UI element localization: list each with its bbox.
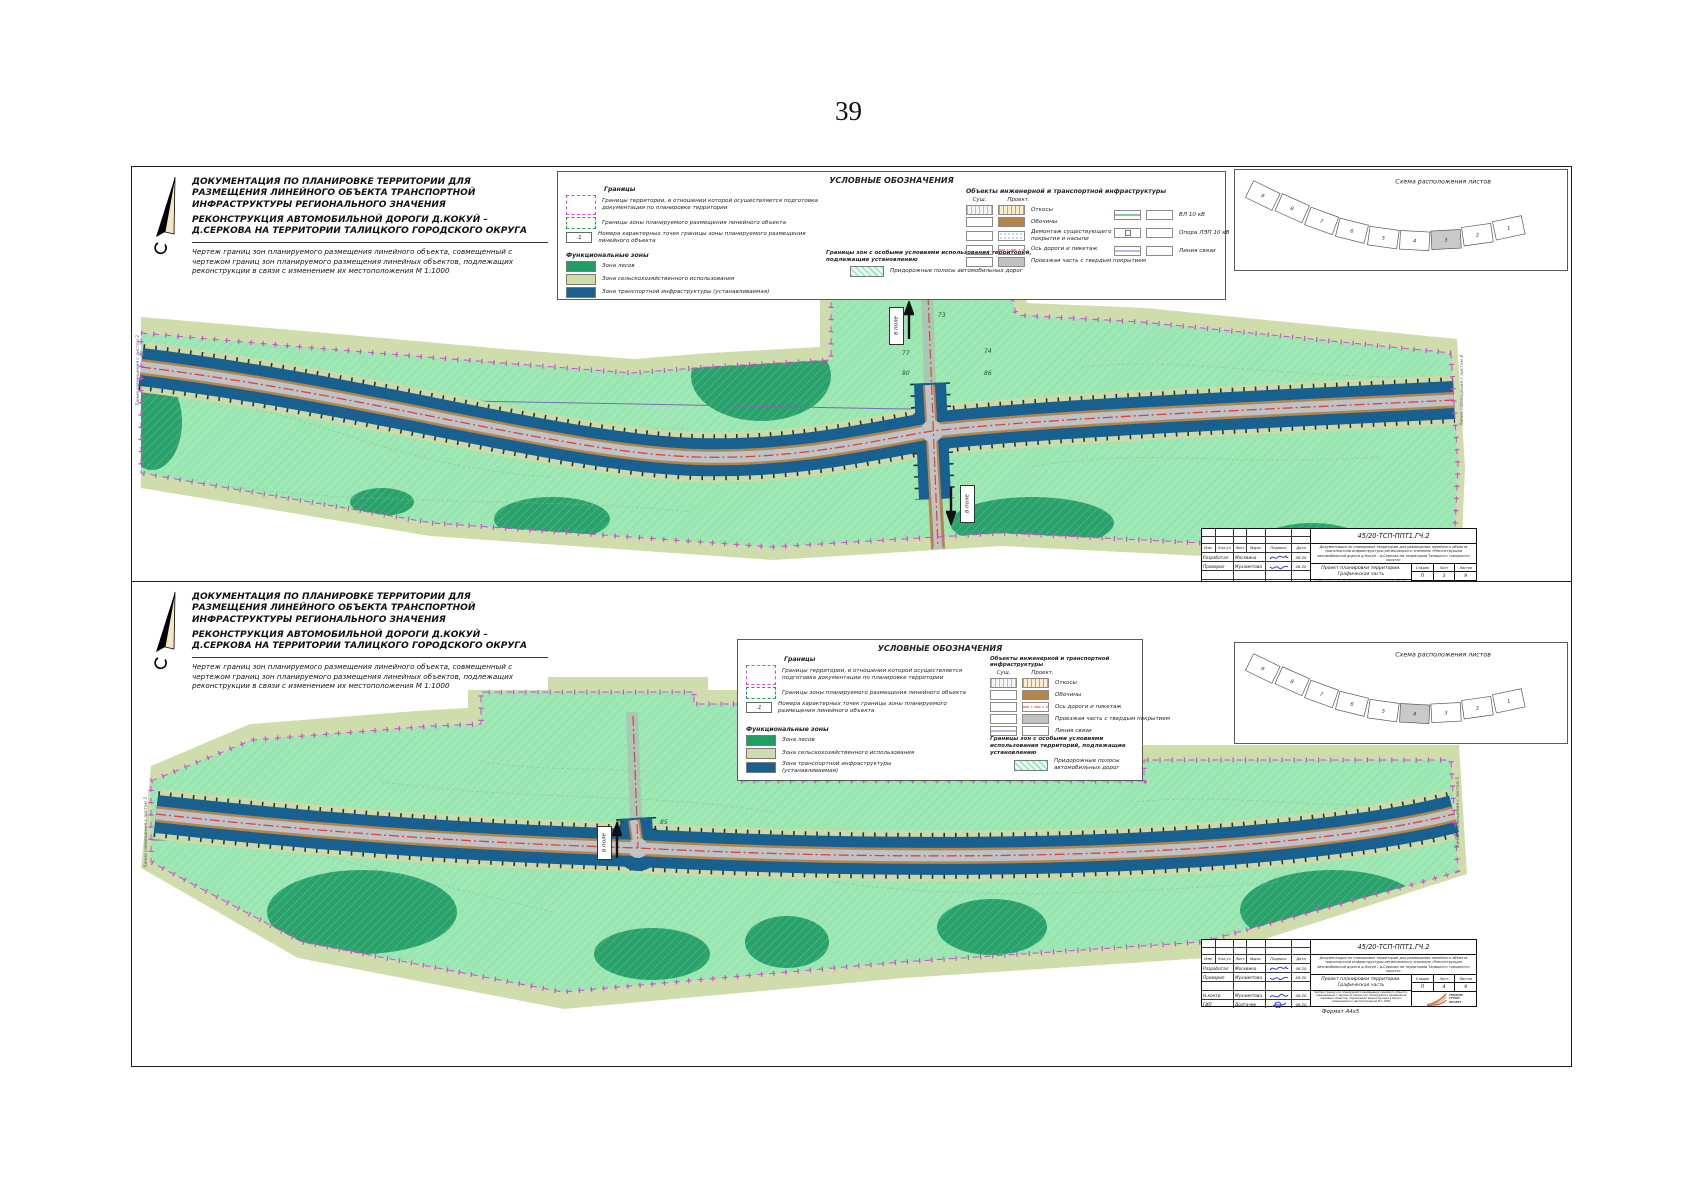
legend-item: Обочины <box>990 690 1138 700</box>
legend-item-label: Ось дороги и пикетаж <box>1055 704 1121 711</box>
sheet-cell: 8 <box>1275 667 1309 696</box>
sheet-cell: 4 <box>1400 230 1430 250</box>
object-zone-boundary-symbol <box>746 687 776 699</box>
sheet-number: 3 <box>1434 572 1456 580</box>
sheet-location-scheme: Схема расположения листов 9 8 7 6 5 4 3 … <box>1234 642 1568 744</box>
sheet-title-block: ДОКУМЕНТАЦИЯ ПО ПЛАНИРОВКЕ ТЕРРИТОРИИ ДЛ… <box>192 177 548 275</box>
col-podpis: Подпись <box>1266 955 1292 963</box>
point-number-symbol: .1 <box>566 232 592 243</box>
slopes-existing-swatch <box>966 205 993 215</box>
road-axis-symbol <box>998 245 1025 255</box>
sheet-cell-current: 3 <box>1431 230 1461 250</box>
matchline-label-right: Линия совмещения с листом 5 <box>1456 777 1461 848</box>
svg-text:4: 4 <box>1413 711 1417 717</box>
svg-text:3: 3 <box>1444 710 1448 716</box>
sheet-cell: 2 <box>1462 696 1494 719</box>
forest-zone-swatch <box>746 735 776 746</box>
scheme-title: Схема расположения листов <box>1395 652 1491 659</box>
legend-item: ВЛ 10 кВ <box>1114 210 1222 220</box>
demolition-existing-swatch <box>966 231 993 241</box>
legend-item: .1 Номера характерных точек границы зоны… <box>566 231 821 245</box>
signature <box>1269 992 1289 999</box>
row-name: Долгачев <box>1234 1000 1266 1008</box>
col-data: Дата <box>1292 544 1310 552</box>
slopes-existing-swatch <box>990 678 1017 688</box>
title-block: Изм.Кол.учЛист№док.ПодписьДата Разработа… <box>1201 939 1477 1007</box>
project-title: Проект планировки территории. Графическа… <box>1311 975 1411 991</box>
legend-item-label: Откосы <box>1031 207 1053 214</box>
row-role: Проверил <box>1202 562 1234 570</box>
legend-utilities-group: ВЛ 10 кВ Опора ЛЭП 10 кВ Линия связи <box>1114 208 1222 258</box>
agro-zone-swatch <box>746 748 776 759</box>
field-direction-label: в поле <box>889 307 904 345</box>
row-role: Разработал <box>1202 964 1234 972</box>
signature <box>1269 974 1289 981</box>
legend-section-zones: Функциональные зоны <box>566 252 821 259</box>
row-name: Мухаметова <box>1234 991 1266 999</box>
sheet-cell-current: 4 <box>1400 703 1430 723</box>
north-arrow-icon <box>144 175 190 255</box>
svg-text:3: 3 <box>1444 237 1448 243</box>
power-pole-symbol <box>1114 228 1141 238</box>
legend-item-label: Линия связи <box>1179 248 1216 255</box>
sheet-cell: 6 <box>1335 691 1368 716</box>
legend-item-label: Откосы <box>1055 680 1077 687</box>
legend-item-label: Номера характерных точек границы зоны пл… <box>598 231 821 245</box>
signature <box>1269 965 1289 972</box>
sheet-cell: 7 <box>1305 207 1339 235</box>
shoulders-existing-swatch <box>990 690 1017 700</box>
road-axis-symbol <box>1022 702 1049 712</box>
svg-text:4: 4 <box>1413 238 1417 244</box>
legend-section-special: Границы зон с особыми условиями использо… <box>990 736 1138 756</box>
legend-borders-group: Границы Границы территории, в отношении … <box>746 656 984 717</box>
row-name: Москвина <box>1234 964 1266 972</box>
legend-item: Границы зоны планируемого размещения лин… <box>566 217 821 229</box>
document-description: Документация по планировке территории дл… <box>1311 544 1476 564</box>
legend-item: Зона лесов <box>746 735 984 746</box>
transport-zone-swatch <box>566 287 596 298</box>
drawing-name: Чертеж границ зон планируемого размещени… <box>1311 991 1411 1006</box>
col-list: Лист <box>1234 955 1247 963</box>
legend-item: Придорожные полосы автомобильных дорог <box>1014 758 1138 772</box>
transport-zone-swatch <box>746 762 776 773</box>
signature <box>1269 554 1289 561</box>
power-line-symbol <box>1114 210 1141 220</box>
legend-item: Зона сельскохозяйственного использования <box>566 274 821 285</box>
col-ndok: №док. <box>1247 955 1266 963</box>
forest-zone-swatch <box>566 261 596 272</box>
document-description: Документация по планировке территории дл… <box>1311 955 1476 975</box>
signature <box>1269 563 1289 570</box>
legend-item-label: Линия связи <box>1055 728 1092 735</box>
legend-item-label: Проезжая часть с твердым покрытием <box>1031 258 1146 265</box>
row-role: Н.контр. <box>1202 991 1234 999</box>
agro-zone-swatch <box>566 274 596 285</box>
scheme-title: Схема расположения листов <box>1395 179 1491 186</box>
row-name: Москвина <box>1234 553 1266 561</box>
field-direction-label: в поле <box>960 485 975 523</box>
legend-item-label: Обочины <box>1031 219 1057 226</box>
legend-item: Опора ЛЭП 10 кВ <box>1114 228 1222 238</box>
col-data: Дата <box>1292 955 1310 963</box>
legend-item: Зона сельскохозяйственного использования <box>746 748 984 759</box>
legend-title: УСЛОВНЫЕ ОБОЗНАЧЕНИЯ <box>558 176 1225 185</box>
col-koluch: Кол.уч <box>1216 544 1234 552</box>
legend-item: Обочины <box>966 217 1116 227</box>
legend-special-group: Границы зон с особыми условиями использо… <box>990 736 1138 774</box>
sheets-total: 9 <box>1455 983 1476 991</box>
legend-item: Откосы <box>990 678 1138 688</box>
object-title: РЕКОНСТРУКЦИЯ АВТОМОБИЛЬНОЙ ДОРОГИ Д.КОК… <box>192 630 548 658</box>
legend-item: Зона лесов <box>566 261 821 272</box>
signature <box>1269 1001 1289 1008</box>
row-date: 08.20 <box>1292 1000 1310 1008</box>
svg-text:80: 80 <box>902 370 910 377</box>
sheet-title-block: ДОКУМЕНТАЦИЯ ПО ПЛАНИРОВКЕ ТЕРРИТОРИИ ДЛ… <box>192 592 548 690</box>
roadside-strip-swatch <box>1014 760 1048 771</box>
legend-item: .1 Номера характерных точек границы зоны… <box>746 701 984 715</box>
legend-item: Демонтаж существующего покрытия и насыпи <box>966 229 1116 243</box>
arrow-up-icon <box>612 822 622 860</box>
legend-item-label: Номера характерных точек границы зоны пл… <box>778 701 984 715</box>
spacer <box>1022 726 1049 736</box>
row-date: 08.20 <box>1292 964 1310 972</box>
legend-item-label: Зона сельскохозяйственного использования <box>602 276 734 283</box>
point-number-symbol: .1 <box>746 702 772 713</box>
sheet-location-scheme: Схема расположения листов 9 8 7 6 5 4 3 … <box>1234 169 1568 271</box>
spacer <box>966 257 993 267</box>
sheet-cell: 3 <box>1431 703 1461 723</box>
pavement-swatch <box>998 257 1025 267</box>
row-date: 08.20 <box>1292 973 1310 981</box>
col-list: Лист <box>1234 544 1247 552</box>
legend-zones-group: Функциональные зоны Зона лесов Зона сель… <box>566 252 821 300</box>
spacer <box>990 714 1017 724</box>
matchline-label-left: Линия совмещения с листом 3 <box>144 797 149 868</box>
legend-zones-group: Функциональные зоны Зона лесов Зона сель… <box>746 726 984 777</box>
territory-boundary-symbol <box>746 665 776 685</box>
sheet-cell: 2 <box>1462 223 1494 246</box>
legend-item-label: Границы территории, в отношении которой … <box>602 198 821 212</box>
title-block-main: 45/20-ТСП-ППТ1.ГЧ.2 Документация по план… <box>1311 940 1476 1006</box>
legend-column-headers: Сущ. Проект. <box>990 670 1138 676</box>
sheet-cell: 6 <box>1335 218 1368 243</box>
legend-infra-group: Объекты инженерной и транспортной инфрас… <box>966 188 1116 269</box>
legend-item-label: Опора ЛЭП 10 кВ <box>1179 230 1229 237</box>
col-izm: Изм. <box>1202 544 1216 552</box>
svg-text:73: 73 <box>938 312 946 319</box>
legend-item: Откосы <box>966 205 1116 215</box>
roadside-strip-swatch <box>850 266 884 277</box>
legend-item-label: Зона лесов <box>602 263 635 270</box>
logo-swoosh-icon <box>1425 992 1447 1006</box>
legend-section-infra: Объекты инженерной и транспортной инфрас… <box>966 188 1116 195</box>
document-number: 45/20-ТСП-ППТ1.ГЧ.2 <box>1311 940 1476 955</box>
legend-item-label: Обочины <box>1055 692 1081 699</box>
spacer <box>1146 228 1173 238</box>
sheet-cell: 5 <box>1367 226 1399 249</box>
drawing-sheet-3: 73 74 77 80 86 в поле в поле Линия совме… <box>131 166 1572 614</box>
demolition-project-swatch <box>998 231 1025 241</box>
legend-item-label: Зона лесов <box>782 737 815 744</box>
legend: УСЛОВНЫЕ ОБОЗНАЧЕНИЯ Границы Границы тер… <box>557 171 1226 300</box>
legend-item: Границы территории, в отношении которой … <box>566 195 821 215</box>
col-existing: Сущ. <box>966 197 993 203</box>
row-role: Разработал <box>1202 553 1234 561</box>
col-project: Проект. <box>1029 670 1056 676</box>
legend-section-borders: Границы <box>784 656 984 663</box>
matchline-label-left: Линия совмещения с листом 2 <box>136 335 141 406</box>
legend-item-label: Зона транспортной инфраструктуры (устана… <box>602 289 769 296</box>
format-note: Формат А4х5 <box>1322 1009 1359 1015</box>
stage-header: СтадияЛистЛистов <box>1412 564 1476 572</box>
legend-item-label: Ось дороги и пикетаж <box>1031 246 1097 253</box>
legend-section-infra: Объекты инженерной и транспортной инфрас… <box>990 656 1138 668</box>
north-arrow-icon <box>144 590 190 670</box>
legend-section-zones: Функциональные зоны <box>746 726 984 733</box>
spacer <box>1146 246 1173 256</box>
svg-text:86: 86 <box>984 370 992 377</box>
comm-line-symbol <box>990 726 1017 736</box>
territory-boundary-symbol <box>566 195 596 215</box>
legend-item-label: Придорожные полосы автомобильных дорог <box>1054 758 1138 772</box>
legend-item: Зона транспортной инфраструктуры (устана… <box>566 287 821 298</box>
stage-values: П39 <box>1412 572 1476 581</box>
project-title: Проект планировки территории. Графическа… <box>1311 564 1411 580</box>
legend-item: Линия связи <box>990 726 1138 736</box>
legend-item-label: Придорожные полосы автомобильных дорог <box>890 268 1023 275</box>
legend-item: Границы территории, в отношении которой … <box>746 665 984 685</box>
legend-item-label: Границы зоны планируемого размещения лин… <box>602 220 786 227</box>
doc-title: ДОКУМЕНТАЦИЯ ПО ПЛАНИРОВКЕ ТЕРРИТОРИИ ДЛ… <box>192 592 548 626</box>
stage-value: П <box>1412 983 1434 991</box>
sheet-cell: 7 <box>1305 680 1339 708</box>
legend-item: Зона транспортной инфраструктуры (устана… <box>746 761 984 775</box>
col-existing: Сущ. <box>990 670 1017 676</box>
page-number: 39 <box>0 96 1697 127</box>
slopes-project-swatch <box>1022 678 1049 688</box>
comm-line-symbol <box>1114 246 1141 256</box>
object-zone-boundary-symbol <box>566 217 596 229</box>
col-project: Проект. <box>1005 197 1032 203</box>
sheet-cell: 1 <box>1492 216 1525 240</box>
shoulders-existing-swatch <box>966 217 993 227</box>
matchline-label-right: Линия совмещения с листом 4 <box>1460 355 1465 426</box>
sheet-cell: 9 <box>1246 654 1281 684</box>
legend-item: Границы зоны планируемого размещения лин… <box>746 687 984 699</box>
legend-borders-group: Границы Границы территории, в отношении … <box>566 186 821 247</box>
col-ndok: №док. <box>1247 544 1266 552</box>
row-date: 08.20 <box>1292 553 1310 561</box>
arrow-down-icon <box>946 485 956 525</box>
row-role: Проверил <box>1202 973 1234 981</box>
drawing-title: Чертеж границ зон планируемого размещени… <box>192 657 548 690</box>
stage-values: П49 <box>1412 983 1476 992</box>
legend-section-borders: Границы <box>604 186 821 193</box>
doc-title: ДОКУМЕНТАЦИЯ ПО ПЛАНИРОВКЕ ТЕРРИТОРИИ ДЛ… <box>192 177 548 211</box>
sheets-total: 9 <box>1455 572 1476 580</box>
spacer <box>966 245 993 255</box>
legend: УСЛОВНЫЕ ОБОЗНАЧЕНИЯ Границы Границы тер… <box>737 639 1143 781</box>
sheet-number: 4 <box>1434 983 1456 991</box>
row-date: 08.20 <box>1292 562 1310 570</box>
legend-item-label: Зона транспортной инфраструктуры (устана… <box>782 761 912 775</box>
legend-item: Проезжая часть с твердым покрытием <box>966 257 1116 267</box>
legend-item-label: Зона сельскохозяйственного использования <box>782 750 914 757</box>
legend-item-label: Границы территории, в отношении которой … <box>782 668 984 682</box>
sheet-cell: 5 <box>1367 699 1399 722</box>
spacer <box>1146 210 1173 220</box>
row-role: ГИП <box>1202 1000 1234 1008</box>
svg-text:77: 77 <box>902 350 910 357</box>
legend-column-headers: Сущ. Проект. <box>966 197 1116 203</box>
sheet-cell: 9 <box>1246 181 1281 211</box>
sheet-cell: 8 <box>1275 194 1309 223</box>
legend-item: Линия связи <box>1114 246 1222 256</box>
shoulders-project-swatch <box>1022 690 1049 700</box>
pavement-swatch <box>1022 714 1049 724</box>
slopes-project-swatch <box>998 205 1025 215</box>
field-direction-label: в поле <box>597 826 612 860</box>
legend-item: Проезжая часть с твердым покрытием <box>990 714 1138 724</box>
col-koluch: Кол.уч <box>1216 955 1234 963</box>
col-izm: Изм. <box>1202 955 1216 963</box>
row-name: Мухаметова <box>1234 973 1266 981</box>
spacer <box>990 702 1017 712</box>
legend-item: Ось дороги и пикетаж <box>990 702 1138 712</box>
stage-header: СтадияЛистЛистов <box>1412 975 1476 983</box>
legend-title: УСЛОВНЫЕ ОБОЗНАЧЕНИЯ <box>738 644 1142 653</box>
legend-infra-group: Объекты инженерной и транспортной инфрас… <box>990 656 1138 738</box>
legend-item-label: ВЛ 10 кВ <box>1179 212 1205 219</box>
document-number: 45/20-ТСП-ППТ1.ГЧ.2 <box>1311 529 1476 544</box>
row-date: 08.20 <box>1292 991 1310 999</box>
sheet-cell: 1 <box>1492 689 1525 713</box>
title-block-signatures: Изм.Кол.учЛист№док.ПодписьДата Разработа… <box>1202 940 1311 1006</box>
legend-item-label: Демонтаж существующего покрытия и насыпи <box>1031 229 1116 243</box>
drawing-title: Чертеж границ зон планируемого размещени… <box>192 242 548 275</box>
object-title: РЕКОНСТРУКЦИЯ АВТОМОБИЛЬНОЙ ДОРОГИ Д.КОК… <box>192 215 548 243</box>
legend-item-label: Проезжая часть с твердым покрытием <box>1055 716 1170 723</box>
company-logo: ТЮМЕНЬСТРОЙПРОЕКТ <box>1412 992 1476 1006</box>
legend-item-label: Границы зоны планируемого размещения лин… <box>782 690 966 697</box>
svg-text:74: 74 <box>984 348 992 355</box>
stage-value: П <box>1412 572 1434 580</box>
shoulders-project-swatch <box>998 217 1025 227</box>
legend-item: Ось дороги и пикетаж <box>966 245 1116 255</box>
svg-text:85: 85 <box>660 819 668 826</box>
arrow-up-icon <box>904 301 914 341</box>
drawing-sheet-4: 86 85 в поле Линия совмещения с листом 3… <box>131 581 1572 1067</box>
col-podpis: Подпись <box>1266 544 1292 552</box>
row-name: Мухаметова <box>1234 562 1266 570</box>
